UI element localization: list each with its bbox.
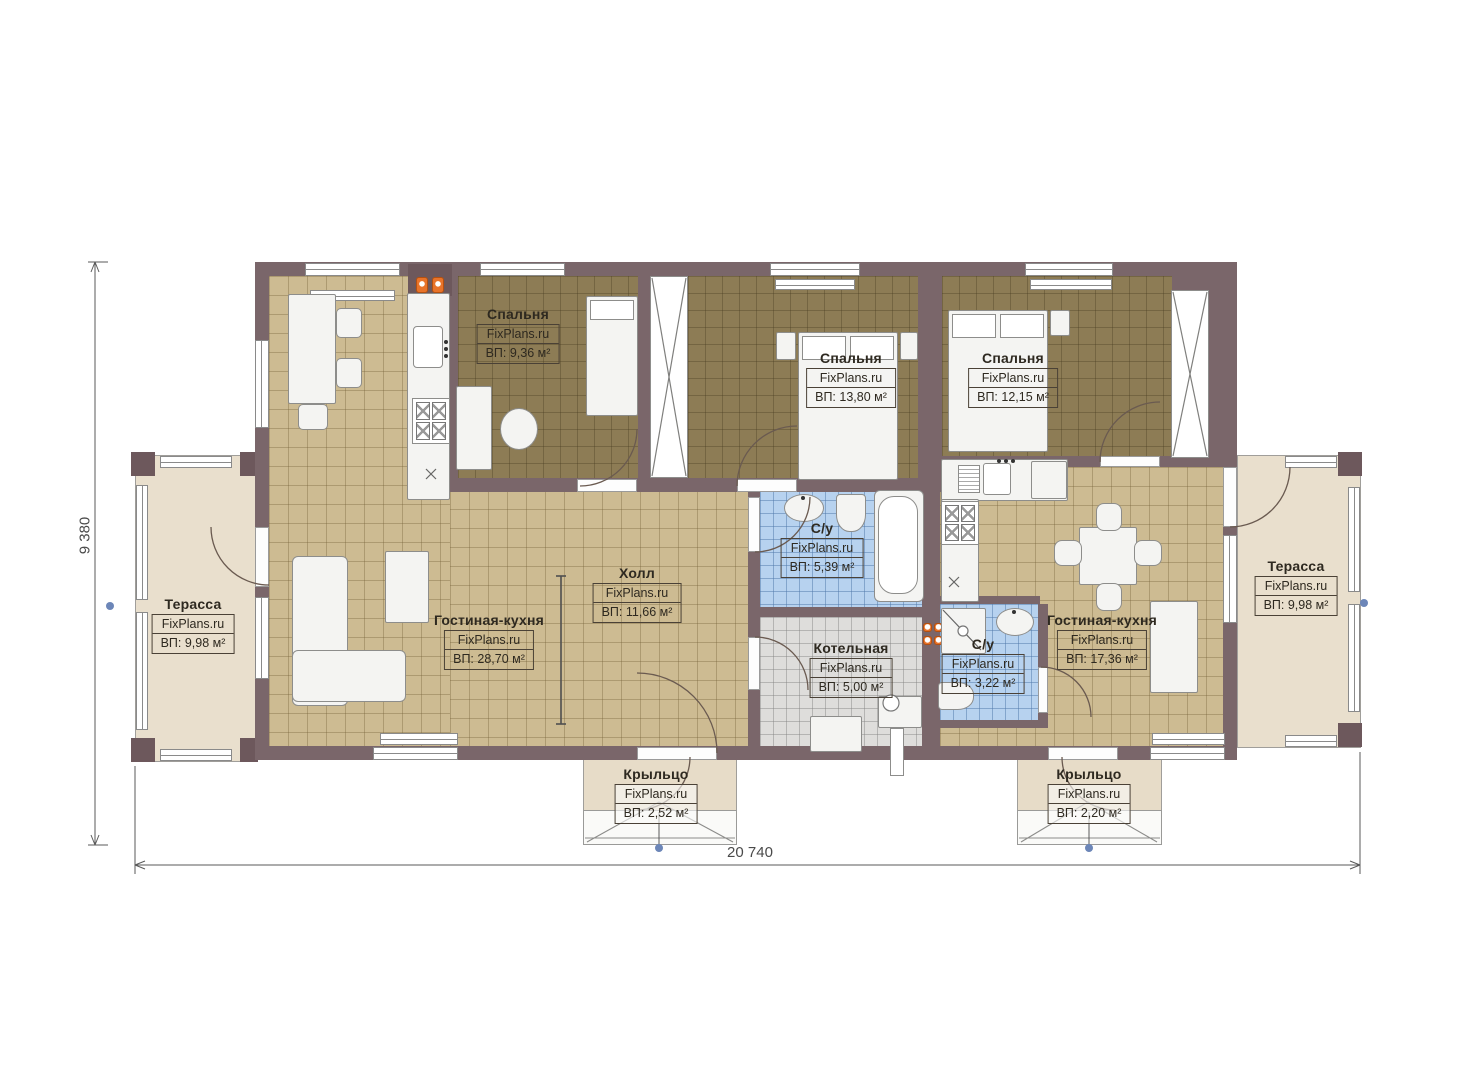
room-label-bedroom-2: Спальня FixPlans.ru ВП: 13,80 м²: [806, 350, 896, 408]
room-area: ВП: 2,20 м²: [1049, 803, 1130, 822]
watermark: FixPlans.ru: [782, 539, 863, 557]
room-area: ВП: 3,22 м²: [943, 673, 1024, 692]
room-name: Спальня: [968, 350, 1058, 366]
room-area: ВП: 5,00 м²: [811, 677, 892, 696]
floor-plan: Спальня FixPlans.ru ВП: 9,36 м² Спальня …: [0, 0, 1474, 1080]
watermark: FixPlans.ru: [1256, 577, 1337, 595]
watermark: FixPlans.ru: [1049, 785, 1130, 803]
plan-annotations: [0, 0, 1474, 1080]
room-info-box: FixPlans.ru ВП: 5,39 м²: [781, 538, 864, 578]
room-info-box: FixPlans.ru ВП: 28,70 м²: [444, 630, 534, 670]
room-area: ВП: 12,15 м²: [969, 387, 1057, 406]
room-name: Крыльцо: [1048, 766, 1131, 782]
room-area: ВП: 9,36 м²: [478, 343, 559, 362]
watermark: FixPlans.ru: [153, 615, 234, 633]
room-area: ВП: 2,52 м²: [616, 803, 697, 822]
dimension-height: 9 380: [77, 491, 94, 581]
room-name: Холл: [593, 565, 682, 581]
room-label-porch-right: Крыльцо FixPlans.ru ВП: 2,20 м²: [1048, 766, 1131, 824]
room-info-box: FixPlans.ru ВП: 9,98 м²: [152, 614, 235, 654]
room-label-terrace-right: Терасса FixPlans.ru ВП: 9,98 м²: [1255, 558, 1338, 616]
room-area: ВП: 9,98 м²: [1256, 595, 1337, 614]
room-name: Гостиная-кухня: [434, 612, 544, 628]
dimension-lines: [88, 262, 1360, 874]
room-info-box: FixPlans.ru ВП: 11,66 м²: [593, 583, 682, 623]
room-label-boiler: Котельная FixPlans.ru ВП: 5,00 м²: [810, 640, 893, 698]
room-name: Гостиная-кухня: [1047, 612, 1157, 628]
room-label-bathroom-2: С/у FixPlans.ru ВП: 3,22 м²: [942, 636, 1025, 694]
watermark: FixPlans.ru: [811, 659, 892, 677]
room-info-box: FixPlans.ru ВП: 17,36 м²: [1057, 630, 1147, 670]
room-name: С/у: [781, 520, 864, 536]
room-label-bedroom-1: Спальня FixPlans.ru ВП: 9,36 м²: [477, 306, 560, 364]
room-name: Терасса: [1255, 558, 1338, 574]
dimension-width: 20 740: [700, 844, 800, 861]
room-area: ВП: 17,36 м²: [1058, 649, 1146, 668]
room-name: Терасса: [152, 596, 235, 612]
room-area: ВП: 28,70 м²: [445, 649, 533, 668]
room-label-living-left: Гостиная-кухня FixPlans.ru ВП: 28,70 м²: [434, 612, 544, 670]
room-info-box: FixPlans.ru ВП: 2,52 м²: [615, 784, 698, 824]
room-name: Спальня: [806, 350, 896, 366]
watermark: FixPlans.ru: [445, 631, 533, 649]
watermark: FixPlans.ru: [943, 655, 1024, 673]
room-area: ВП: 13,80 м²: [807, 387, 895, 406]
room-label-porch-left: Крыльцо FixPlans.ru ВП: 2,52 м²: [615, 766, 698, 824]
watermark: FixPlans.ru: [616, 785, 697, 803]
room-info-box: FixPlans.ru ВП: 13,80 м²: [806, 368, 896, 408]
room-area: ВП: 9,98 м²: [153, 633, 234, 652]
survey-markers: [106, 599, 1368, 852]
faucet-dots: [444, 340, 1016, 614]
door-swing-arcs: [211, 402, 1290, 810]
room-label-bathroom-1: С/у FixPlans.ru ВП: 5,39 м²: [781, 520, 864, 578]
watermark: FixPlans.ru: [807, 369, 895, 387]
watermark: FixPlans.ru: [1058, 631, 1146, 649]
room-info-box: FixPlans.ru ВП: 5,00 м²: [810, 658, 893, 698]
room-label-bedroom-3: Спальня FixPlans.ru ВП: 12,15 м²: [968, 350, 1058, 408]
room-label-terrace-left: Терасса FixPlans.ru ВП: 9,98 м²: [152, 596, 235, 654]
room-info-box: FixPlans.ru ВП: 9,98 м²: [1255, 576, 1338, 616]
room-info-box: FixPlans.ru ВП: 3,22 м²: [942, 654, 1025, 694]
wardrobe-x-lines: [652, 278, 1207, 476]
room-area: ВП: 11,66 м²: [594, 602, 681, 621]
room-label-living-right: Гостиная-кухня FixPlans.ru ВП: 17,36 м²: [1047, 612, 1157, 670]
room-label-hall: Холл FixPlans.ru ВП: 11,66 м²: [593, 565, 682, 623]
sliding-partition: [556, 576, 566, 724]
room-name: Крыльцо: [615, 766, 698, 782]
room-area: ВП: 5,39 м²: [782, 557, 863, 576]
room-name: С/у: [942, 636, 1025, 652]
room-name: Спальня: [477, 306, 560, 322]
watermark: FixPlans.ru: [594, 584, 681, 602]
room-info-box: FixPlans.ru ВП: 2,20 м²: [1048, 784, 1131, 824]
room-name: Котельная: [810, 640, 893, 656]
fixture-details: [426, 469, 981, 711]
room-info-box: FixPlans.ru ВП: 12,15 м²: [968, 368, 1058, 408]
watermark: FixPlans.ru: [969, 369, 1057, 387]
room-info-box: FixPlans.ru ВП: 9,36 м²: [477, 324, 560, 364]
watermark: FixPlans.ru: [478, 325, 559, 343]
